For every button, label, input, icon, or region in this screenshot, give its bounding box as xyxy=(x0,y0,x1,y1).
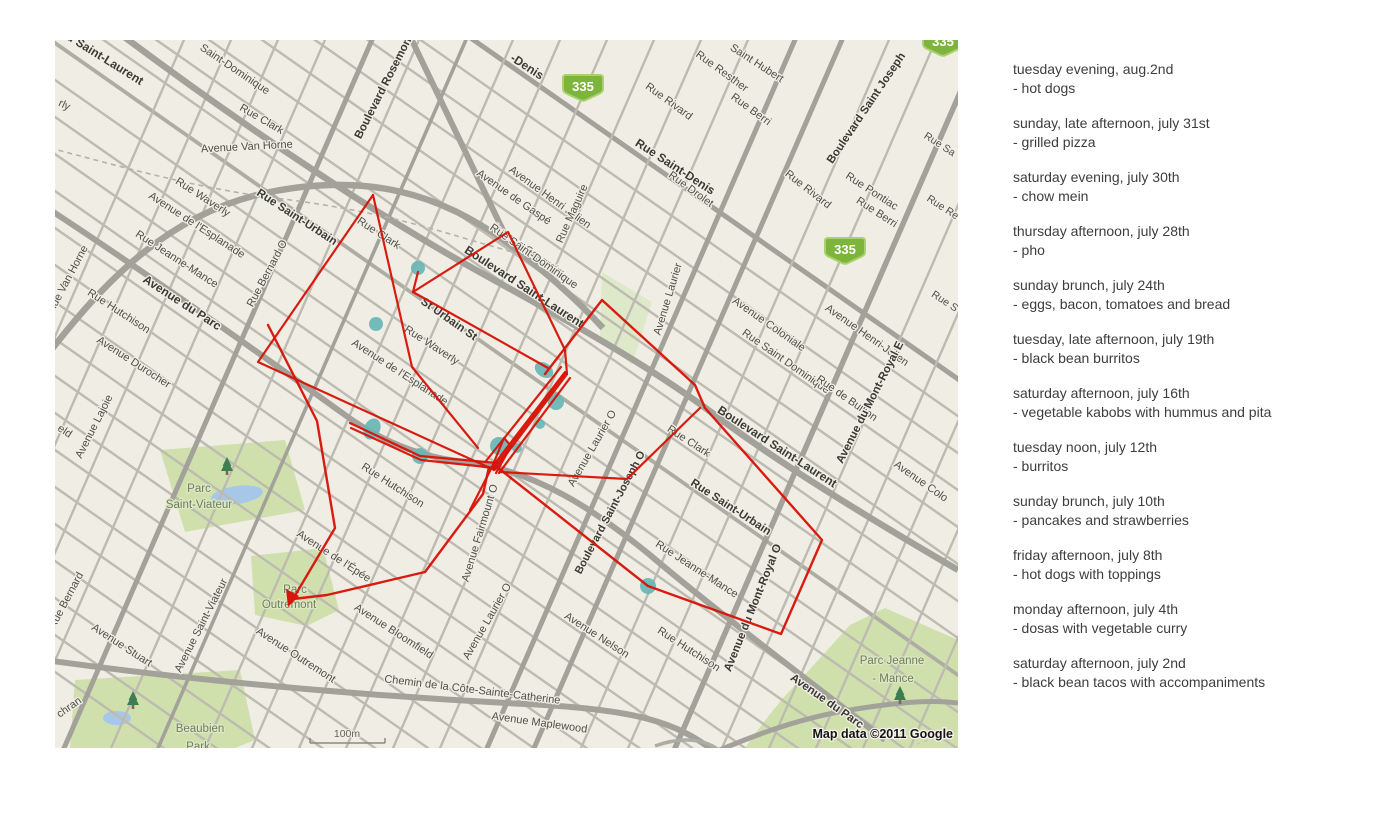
meal-entry: friday afternoon, july 8th - hot dogs wi… xyxy=(1013,546,1353,584)
meal-entry: sunday brunch, july 10th - pancakes and … xyxy=(1013,492,1353,530)
park-label: Saint-Viateur xyxy=(166,499,232,511)
meal-entry: tuesday, late afternoon, july 19th - bla… xyxy=(1013,330,1353,368)
meal-entry: sunday brunch, july 24th - eggs, bacon, … xyxy=(1013,276,1353,314)
meal-entry-food: - eggs, bacon, tomatoes and bread xyxy=(1013,295,1353,314)
meal-entry-date: tuesday noon, july 12th xyxy=(1013,438,1353,457)
meal-entry: thursday afternoon, july 28th - pho xyxy=(1013,222,1353,260)
meal-entry-date: tuesday evening, aug.2nd xyxy=(1013,60,1353,79)
meal-entry-date: saturday afternoon, july 2nd xyxy=(1013,654,1353,673)
meal-entry-date: saturday afternoon, july 16th xyxy=(1013,384,1353,403)
shield-number: 335 xyxy=(572,79,594,94)
meal-entry-food: - black bean burritos xyxy=(1013,349,1353,368)
meal-entry: saturday afternoon, july 16th - vegetabl… xyxy=(1013,384,1353,422)
meal-entry: tuesday evening, aug.2nd - hot dogs xyxy=(1013,60,1353,98)
meal-log-list: tuesday evening, aug.2nd - hot dogs sund… xyxy=(1013,60,1353,708)
meal-entry: saturday afternoon, july 2nd - black bea… xyxy=(1013,654,1353,692)
meal-entry-date: tuesday, late afternoon, july 19th xyxy=(1013,330,1353,349)
meal-entry-food: - dosas with vegetable curry xyxy=(1013,619,1353,638)
meal-entry-food: - vegetable kabobs with hummus and pita xyxy=(1013,403,1353,422)
map-copyright: Map data ©2011 Google xyxy=(812,727,953,741)
map-canvas: d Saint-LaurentRue ClarkSaint-DominiqueB… xyxy=(55,40,958,748)
map-image: d Saint-LaurentRue ClarkSaint-DominiqueB… xyxy=(55,40,958,748)
meal-entry-date: sunday brunch, july 10th xyxy=(1013,492,1353,511)
meal-entry-food: - grilled pizza xyxy=(1013,133,1353,152)
meal-entry-food: - pancakes and strawberries xyxy=(1013,511,1353,530)
meal-entry-date: saturday evening, july 30th xyxy=(1013,168,1353,187)
park-label: Park xyxy=(186,741,210,748)
park-label: Parc Jeanne xyxy=(860,655,925,667)
meal-entry: sunday, late afternoon, july 31st - gril… xyxy=(1013,114,1353,152)
visit-dot xyxy=(369,317,383,331)
meal-entry-date: thursday afternoon, july 28th xyxy=(1013,222,1353,241)
meal-entry-date: friday afternoon, july 8th xyxy=(1013,546,1353,565)
meal-entry: monday afternoon, july 4th - dosas with … xyxy=(1013,600,1353,638)
meal-entry-food: - burritos xyxy=(1013,457,1353,476)
meal-entry-food: - chow mein xyxy=(1013,187,1353,206)
shield-number: 335 xyxy=(932,40,954,49)
meal-entry-date: sunday, late afternoon, july 31st xyxy=(1013,114,1353,133)
meal-entry-food: - pho xyxy=(1013,241,1353,260)
meal-entry: tuesday noon, july 12th - burritos xyxy=(1013,438,1353,476)
park-label: Parc xyxy=(187,483,211,495)
meal-entry: saturday evening, july 30th - chow mein xyxy=(1013,168,1353,206)
park-label: Beaubien xyxy=(176,723,225,735)
park-label: - Mance xyxy=(872,673,914,685)
shield-number: 335 xyxy=(834,242,856,257)
meal-entry-date: monday afternoon, july 4th xyxy=(1013,600,1353,619)
scale-label: 100m xyxy=(334,728,361,740)
meal-entry-date: sunday brunch, july 24th xyxy=(1013,276,1353,295)
meal-entry-food: - hot dogs xyxy=(1013,79,1353,98)
meal-entry-food: - hot dogs with toppings xyxy=(1013,565,1353,584)
meal-entry-food: - black bean tacos with accompaniments xyxy=(1013,673,1353,692)
